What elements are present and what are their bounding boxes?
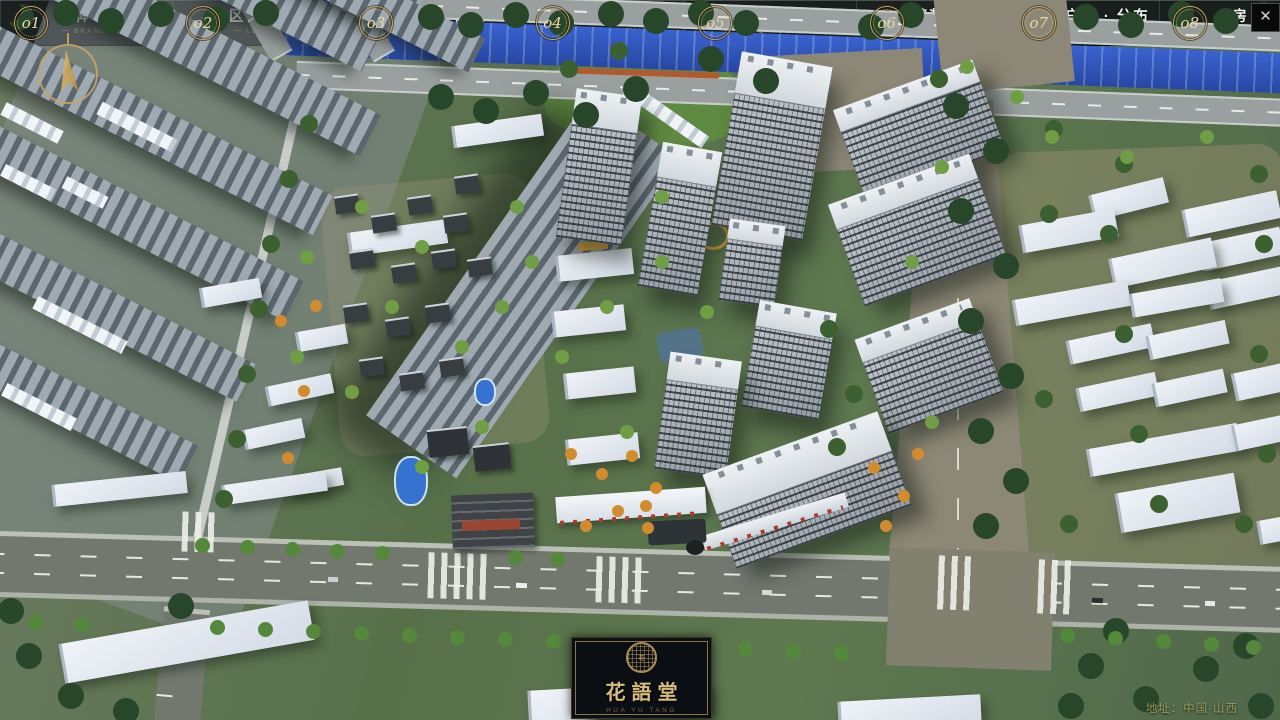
courtyard-house bbox=[359, 356, 385, 377]
north-arrow-icon bbox=[51, 49, 85, 97]
nav-badge: o1 bbox=[14, 6, 48, 40]
nav-badge: o6 bbox=[870, 6, 904, 40]
map-view[interactable] bbox=[0, 0, 1280, 720]
courtyard-house bbox=[443, 212, 469, 233]
courtyard-house bbox=[467, 256, 493, 277]
nav-number: o5 bbox=[706, 14, 725, 32]
courtyard-house bbox=[371, 212, 397, 233]
courtyard-house bbox=[425, 302, 451, 323]
logo-frame: 花 花語堂 HUA YU TANG bbox=[575, 641, 708, 715]
tower bbox=[654, 352, 742, 479]
residential-slab bbox=[563, 366, 636, 399]
nav-badge: o3 bbox=[359, 6, 393, 40]
pond bbox=[394, 456, 428, 506]
compass-icon bbox=[38, 44, 98, 104]
car bbox=[328, 577, 338, 582]
tower-roof bbox=[572, 88, 643, 134]
sales-center-wall bbox=[462, 519, 520, 531]
crosswalk bbox=[937, 555, 977, 610]
courtyard-house bbox=[407, 194, 433, 215]
tower bbox=[719, 219, 786, 308]
tower-roof bbox=[657, 142, 722, 188]
nav-number: o4 bbox=[543, 14, 562, 32]
pond bbox=[474, 378, 496, 406]
nav-number: o8 bbox=[1180, 14, 1199, 32]
courtyard-house bbox=[454, 173, 480, 194]
crosswalk bbox=[181, 512, 216, 553]
residential-slab bbox=[451, 114, 544, 148]
tower bbox=[703, 411, 912, 569]
car bbox=[1205, 601, 1215, 606]
car bbox=[516, 583, 527, 588]
close-icon: ✕ bbox=[1259, 8, 1272, 25]
crosswalk bbox=[595, 556, 646, 603]
project-name: 花語堂 bbox=[600, 676, 684, 705]
sales-presentation-screen: ✕ o1 品牌 · 介绍BRAND SUPPORT o2 区位 · 价值LOCA… bbox=[0, 0, 1280, 720]
tower bbox=[741, 300, 837, 420]
compass-stem bbox=[67, 33, 69, 45]
courtyard-house bbox=[334, 193, 360, 214]
crosswalk bbox=[1037, 559, 1077, 614]
residential-slab bbox=[565, 432, 640, 465]
nav-number: o1 bbox=[22, 14, 41, 32]
nav-number: o6 bbox=[877, 14, 896, 32]
tree-cluster-autumn bbox=[0, 0, 12, 12]
nav-badge: o8 bbox=[1173, 6, 1207, 40]
courtyard-house bbox=[439, 356, 465, 377]
tower-roof bbox=[755, 300, 836, 340]
courtyard-house bbox=[431, 248, 457, 269]
close-button[interactable]: ✕ bbox=[1251, 3, 1280, 32]
courtyard-house bbox=[385, 316, 411, 337]
crosswalk bbox=[427, 552, 486, 600]
nav-number: o7 bbox=[1030, 14, 1049, 32]
gate-plaza-circle bbox=[686, 540, 704, 555]
courtyard-house bbox=[473, 442, 512, 472]
project-name-caption: HUA YU TANG bbox=[606, 707, 677, 714]
seal-emblem-icon: 花 bbox=[626, 642, 657, 673]
courtyard-house bbox=[343, 302, 369, 323]
tower-roof bbox=[666, 352, 741, 391]
car bbox=[1092, 598, 1103, 603]
seal-character: 花 bbox=[638, 653, 644, 662]
project-logo-panel[interactable]: 花 花語堂 HUA YU TANG bbox=[571, 637, 712, 719]
nav-badge: o2 bbox=[186, 6, 220, 40]
residential-slab bbox=[1256, 515, 1280, 545]
residential-slab bbox=[837, 694, 981, 720]
address-text: 地址：中国·山西 bbox=[1146, 700, 1238, 716]
courtyard-house bbox=[391, 262, 417, 283]
nav-number: o2 bbox=[194, 14, 213, 32]
car bbox=[762, 590, 772, 595]
courtyard-house bbox=[427, 426, 470, 458]
courtyard-house bbox=[349, 248, 375, 269]
nav-badge: o4 bbox=[536, 6, 570, 40]
courtyard-house bbox=[399, 370, 425, 391]
nav-badge: o7 bbox=[1022, 6, 1056, 40]
nav-number: o3 bbox=[367, 14, 386, 32]
